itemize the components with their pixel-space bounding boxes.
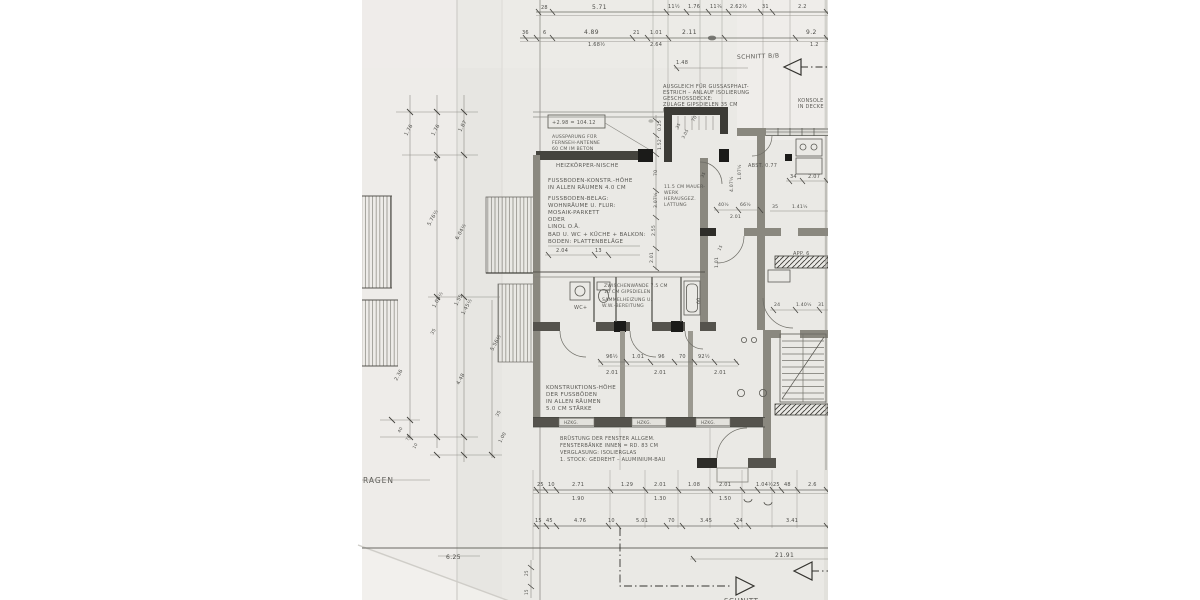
note-line: FUSSBODEN-KONSTR.-HÖHE	[548, 177, 633, 184]
note-line: BAD U. WC + KÜCHE + BALKON:	[548, 231, 646, 238]
dim-label: 70	[653, 170, 659, 176]
window-band	[766, 128, 828, 136]
dim-label: 3.41	[786, 518, 798, 524]
dim-label: 25	[773, 482, 780, 488]
dim-label: 11½	[668, 3, 680, 10]
dim-label: 1.76	[688, 4, 700, 10]
scanned-floor-plan-sheet: 28 5.71 11½ 1.76 11¾ 2.62½ 31 2.2 36 6 4…	[0, 0, 1200, 600]
dim-label: 4.76	[574, 518, 586, 524]
note-line: WERK	[664, 190, 679, 196]
wall-hatch	[775, 404, 828, 415]
dim-label: 2.04	[556, 248, 568, 254]
balcony-hatch	[362, 196, 392, 288]
dim-label: 60	[696, 298, 702, 304]
dim-label: 2.55	[651, 225, 657, 236]
dim-label: 1.2	[810, 42, 819, 48]
dim-label: 1.29	[621, 482, 633, 488]
note-line: W.W.-BEREITUNG	[602, 303, 644, 309]
note-line: 11.5 CM MAUER-	[664, 184, 705, 190]
note-line: 10 CM GIPSDIELEN	[604, 289, 650, 295]
dim-label: 70	[668, 518, 675, 524]
dim-label: 1.01	[650, 30, 662, 36]
note-line: LATTUNG	[664, 202, 687, 208]
dim-label: 36	[522, 30, 529, 36]
room-label: ABST. 0.77	[748, 163, 777, 169]
dim-label: 5.71	[592, 4, 607, 11]
dim-label: 2.6	[808, 482, 817, 488]
dim-label: 2.07	[808, 174, 820, 180]
note-line: IN ALLEN RÄUMEN	[546, 398, 601, 405]
dim-label: 6.25	[446, 554, 461, 561]
dim-label: 15	[535, 518, 542, 524]
dim-label: 2.11	[682, 29, 697, 36]
dim-label: 1.90	[572, 496, 584, 502]
note-line: HEIZKÖRPER-NISCHE	[556, 162, 619, 169]
note-line: ZWISCHENWÄNDE 7.5 CM	[604, 282, 668, 289]
note-line: BODEN: PLATTENBELÄGE	[548, 238, 624, 245]
note-line: BRÜSTUNG DER FENSTER ALLGEM.	[560, 435, 655, 442]
dim-label: 1.41½	[792, 203, 808, 210]
dim-label: 5.01	[636, 518, 648, 524]
note-line: AUSSPARUNG FÜR	[552, 133, 598, 140]
dim-label: 2.01	[606, 370, 618, 376]
window: HZKG.	[632, 419, 666, 426]
dim-label: 48	[784, 482, 791, 488]
dim-label: 4.89	[584, 29, 599, 36]
dim-label: 1.68½	[588, 41, 605, 48]
dim-label: 96½	[606, 353, 618, 360]
dim-label: 2.64	[650, 42, 662, 48]
dim-label: 1.40½	[796, 301, 812, 308]
balcony-hatch	[486, 197, 534, 273]
note-line: KONSTRUKTIONS-HÖHE	[546, 384, 616, 391]
dim-label: 1.52	[657, 139, 663, 150]
dim-label: 11¾	[710, 4, 722, 10]
note-line: VERGLASUNG: ISOLIERGLAS	[560, 450, 637, 456]
dim-label: 2.2	[798, 4, 807, 10]
level-label: +2.98 = 104.12	[552, 120, 596, 126]
dim-label: 21.91	[775, 552, 794, 559]
dim-label: 96	[658, 354, 665, 360]
dim-label: 13	[595, 248, 602, 254]
dim-label: 10	[548, 482, 555, 488]
dim-label: 92½	[698, 353, 710, 360]
dim-label: 2.01	[654, 370, 666, 376]
dim-label: 25	[524, 570, 529, 576]
dim-label: 1.07½	[736, 164, 743, 180]
dim-label: 2.71	[572, 482, 584, 488]
dim-label: 10	[608, 518, 615, 524]
balcony-hatch	[498, 284, 534, 362]
dim-label: 24	[736, 518, 743, 524]
bottom-windows: HZKG. HZKG. HZKG.	[533, 418, 765, 428]
dim-label: 66½	[740, 201, 751, 208]
dim-label: 15	[524, 589, 529, 595]
radiator-label: HZKG.	[564, 420, 578, 425]
dim-label: 3.45	[700, 518, 712, 524]
dim-label: 31	[818, 302, 824, 308]
note-line: 5.0 CM STÄRKE	[546, 405, 592, 412]
dim-label: 2.01	[654, 482, 666, 488]
dim-label: 2.01	[730, 214, 741, 220]
dim-label: 1.50	[719, 496, 731, 502]
dim-label: 6	[543, 30, 546, 36]
window: HZKG.	[559, 419, 594, 426]
dim-label: 2.62½	[730, 3, 747, 10]
note-line: IN DECKE	[798, 104, 824, 110]
note-line: FUSSBODEN-BELAG:	[548, 196, 609, 202]
note-line: FENSTERBÄNKE INNEN = RD. 83 CM	[560, 442, 658, 449]
dim-label: 4.07½	[728, 176, 735, 192]
dim-label: 2.01	[714, 370, 726, 376]
room-label: APP. 6	[793, 251, 810, 257]
balcony-hatch	[362, 300, 398, 366]
note-line: AUSGLEICH FÜR GUSSASPHALT-	[663, 83, 749, 90]
note-line: DER FUSSBÖDEN	[546, 391, 597, 398]
radiator-label: HZKG.	[637, 420, 651, 425]
dim-label: 1.01	[714, 257, 720, 268]
dim-label: 9.2	[806, 29, 817, 36]
note-line: MOSAIK-PARKETT	[548, 210, 600, 216]
dim-label: 0.25	[657, 120, 663, 131]
dim-label: 34	[790, 174, 797, 180]
dim-label: 70	[679, 354, 686, 360]
section-label: SCHNITT B/B	[737, 53, 780, 61]
dim-label: 45	[546, 518, 553, 524]
window: HZKG.	[696, 419, 730, 426]
dim-label: 1.01	[632, 354, 644, 360]
dim-label: 1.04½	[756, 481, 773, 488]
note-line: FERNSEH-ANTENNE	[552, 140, 600, 146]
dim-label: 28	[541, 5, 548, 11]
note-line: HERAUSGEZ.	[664, 196, 696, 202]
garagen-label: GARAGEN	[350, 476, 394, 485]
note-line: LINOL O.Ä.	[548, 223, 580, 230]
floor-plan-svg: 28 5.71 11½ 1.76 11¾ 2.62½ 31 2.2 36 6 4…	[0, 0, 1200, 600]
note-line: SAMMELHEIZUNG U.	[602, 297, 652, 303]
dim-label: 2.01	[719, 482, 731, 488]
dim-label: 1.48	[676, 60, 688, 66]
note-line: WOHNRÄUME U. FLUR:	[548, 202, 616, 209]
dim-label: 21	[633, 30, 640, 36]
dim-label: 2.01	[649, 252, 655, 263]
dim-label: 40½	[718, 201, 729, 208]
note-line: ODER	[548, 217, 565, 223]
dim-label: 1.08	[688, 482, 700, 488]
dim-label: 35	[772, 204, 778, 210]
radiator-label: HZKG.	[701, 420, 715, 425]
dim-label: 24	[774, 302, 780, 308]
dim-label: 25	[537, 482, 544, 488]
dim-label: 1.30	[654, 496, 666, 502]
note-line: IN ALLEN RÄUMEN 4.0 CM	[548, 184, 626, 191]
dim-label: 3.07½	[652, 192, 659, 208]
note-line: 1. STOCK: GEDREHT – ALUMINIUM-BAU	[560, 457, 666, 463]
dim-label: 31	[762, 4, 769, 10]
chimney-hatch	[775, 256, 828, 268]
room-label: WC+	[574, 305, 587, 311]
